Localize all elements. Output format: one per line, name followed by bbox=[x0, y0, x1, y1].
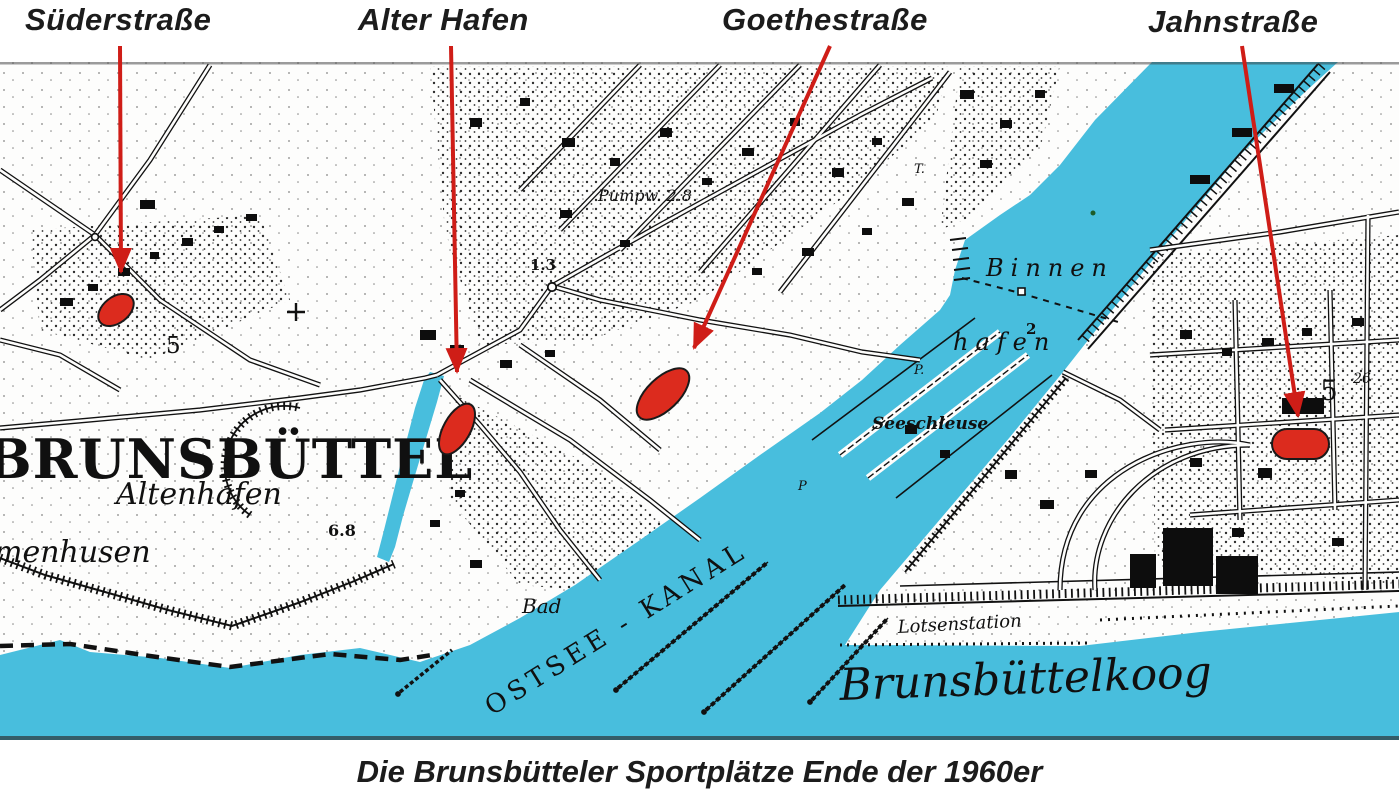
map-label-t: T. bbox=[914, 162, 925, 177]
caption: Die Brunsbütteler Sportplätze Ende der 1… bbox=[0, 754, 1399, 790]
map-label-pumpw: Pumpw. 2.8 bbox=[597, 186, 692, 205]
map-label-altenhafen: Altenhafen bbox=[113, 477, 282, 512]
map-label-five-left: 5 bbox=[166, 333, 181, 359]
map-label-binnen: Binnen bbox=[985, 254, 1114, 282]
map-canvas: BRUNSBÜTTEL Altenhafen menhusen 6.8 Binn… bbox=[0, 62, 1399, 740]
map-label-hafen: hafen bbox=[953, 328, 1056, 356]
map-label-bad: Bad bbox=[521, 594, 561, 618]
label-jahnstrasse: Jahnstraße bbox=[1148, 4, 1318, 40]
map-label-depth-2: 2 bbox=[1026, 320, 1036, 338]
road-junction-dot-2 bbox=[92, 234, 99, 241]
screenshot-root: { "header": { "labels": [ {"text": "Süde… bbox=[0, 0, 1399, 802]
map-label-seeschleuse: Seeschleuse bbox=[872, 414, 988, 434]
map-label-26: 26 bbox=[1352, 371, 1371, 387]
map-label-p2: P bbox=[797, 479, 807, 494]
map-image: BRUNSBÜTTEL Altenhafen menhusen 6.8 Binn… bbox=[0, 62, 1399, 740]
green-dot bbox=[1091, 211, 1096, 216]
map-label-menhusen: menhusen bbox=[0, 535, 151, 570]
map-top-edge bbox=[0, 62, 1399, 65]
road-junction-dot bbox=[548, 283, 556, 291]
label-suederstrasse: Süderstraße bbox=[25, 2, 211, 38]
label-goethestrasse: Goethestraße bbox=[722, 2, 928, 38]
map-label-five-right: 5 bbox=[1320, 374, 1338, 407]
map-label-height-68: 6.8 bbox=[328, 521, 356, 540]
map-label-height-13: 1.3 bbox=[530, 256, 556, 274]
map-label-p1: P. bbox=[913, 363, 924, 378]
label-alter-hafen: Alter Hafen bbox=[358, 2, 529, 38]
map-bottom-edge bbox=[0, 736, 1399, 740]
